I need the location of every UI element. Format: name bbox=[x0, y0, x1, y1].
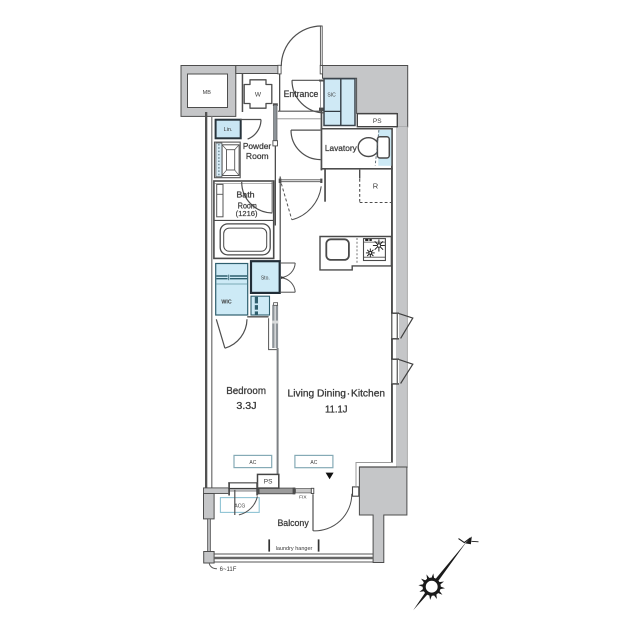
svg-text:Bath: Bath bbox=[236, 191, 254, 200]
svg-text:11.1J: 11.1J bbox=[325, 403, 348, 415]
svg-text:WIC: WIC bbox=[221, 300, 231, 306]
svg-text:(1216): (1216) bbox=[236, 209, 258, 218]
svg-text:Lavatory: Lavatory bbox=[325, 144, 358, 153]
svg-text:R: R bbox=[373, 182, 379, 191]
svg-text:Living Dining · Kitchen: Living Dining · Kitchen bbox=[288, 387, 386, 399]
svg-text:6~11F: 6~11F bbox=[220, 567, 237, 573]
svg-text:AC: AC bbox=[249, 460, 256, 466]
svg-text:Room: Room bbox=[246, 152, 269, 161]
svg-text:laundry hanger: laundry hanger bbox=[276, 546, 313, 552]
svg-text:PS: PS bbox=[373, 118, 382, 125]
svg-text:Lin.: Lin. bbox=[224, 127, 233, 133]
svg-text:SIC: SIC bbox=[327, 93, 336, 99]
svg-text:AC: AC bbox=[310, 460, 317, 466]
svg-text:FIX: FIX bbox=[299, 495, 307, 501]
svg-text:Entrance: Entrance bbox=[284, 89, 319, 100]
svg-text:PS: PS bbox=[264, 479, 273, 486]
svg-text:W: W bbox=[255, 92, 262, 99]
svg-text:3.3J: 3.3J bbox=[236, 400, 256, 412]
svg-text:MB: MB bbox=[203, 90, 212, 96]
svg-text:Balcony: Balcony bbox=[277, 518, 309, 528]
svg-text:Bedroom: Bedroom bbox=[226, 385, 266, 397]
svg-text:ACG: ACG bbox=[234, 503, 245, 509]
svg-text:Sto.: Sto. bbox=[261, 275, 270, 281]
svg-text:Powder: Powder bbox=[243, 142, 272, 151]
